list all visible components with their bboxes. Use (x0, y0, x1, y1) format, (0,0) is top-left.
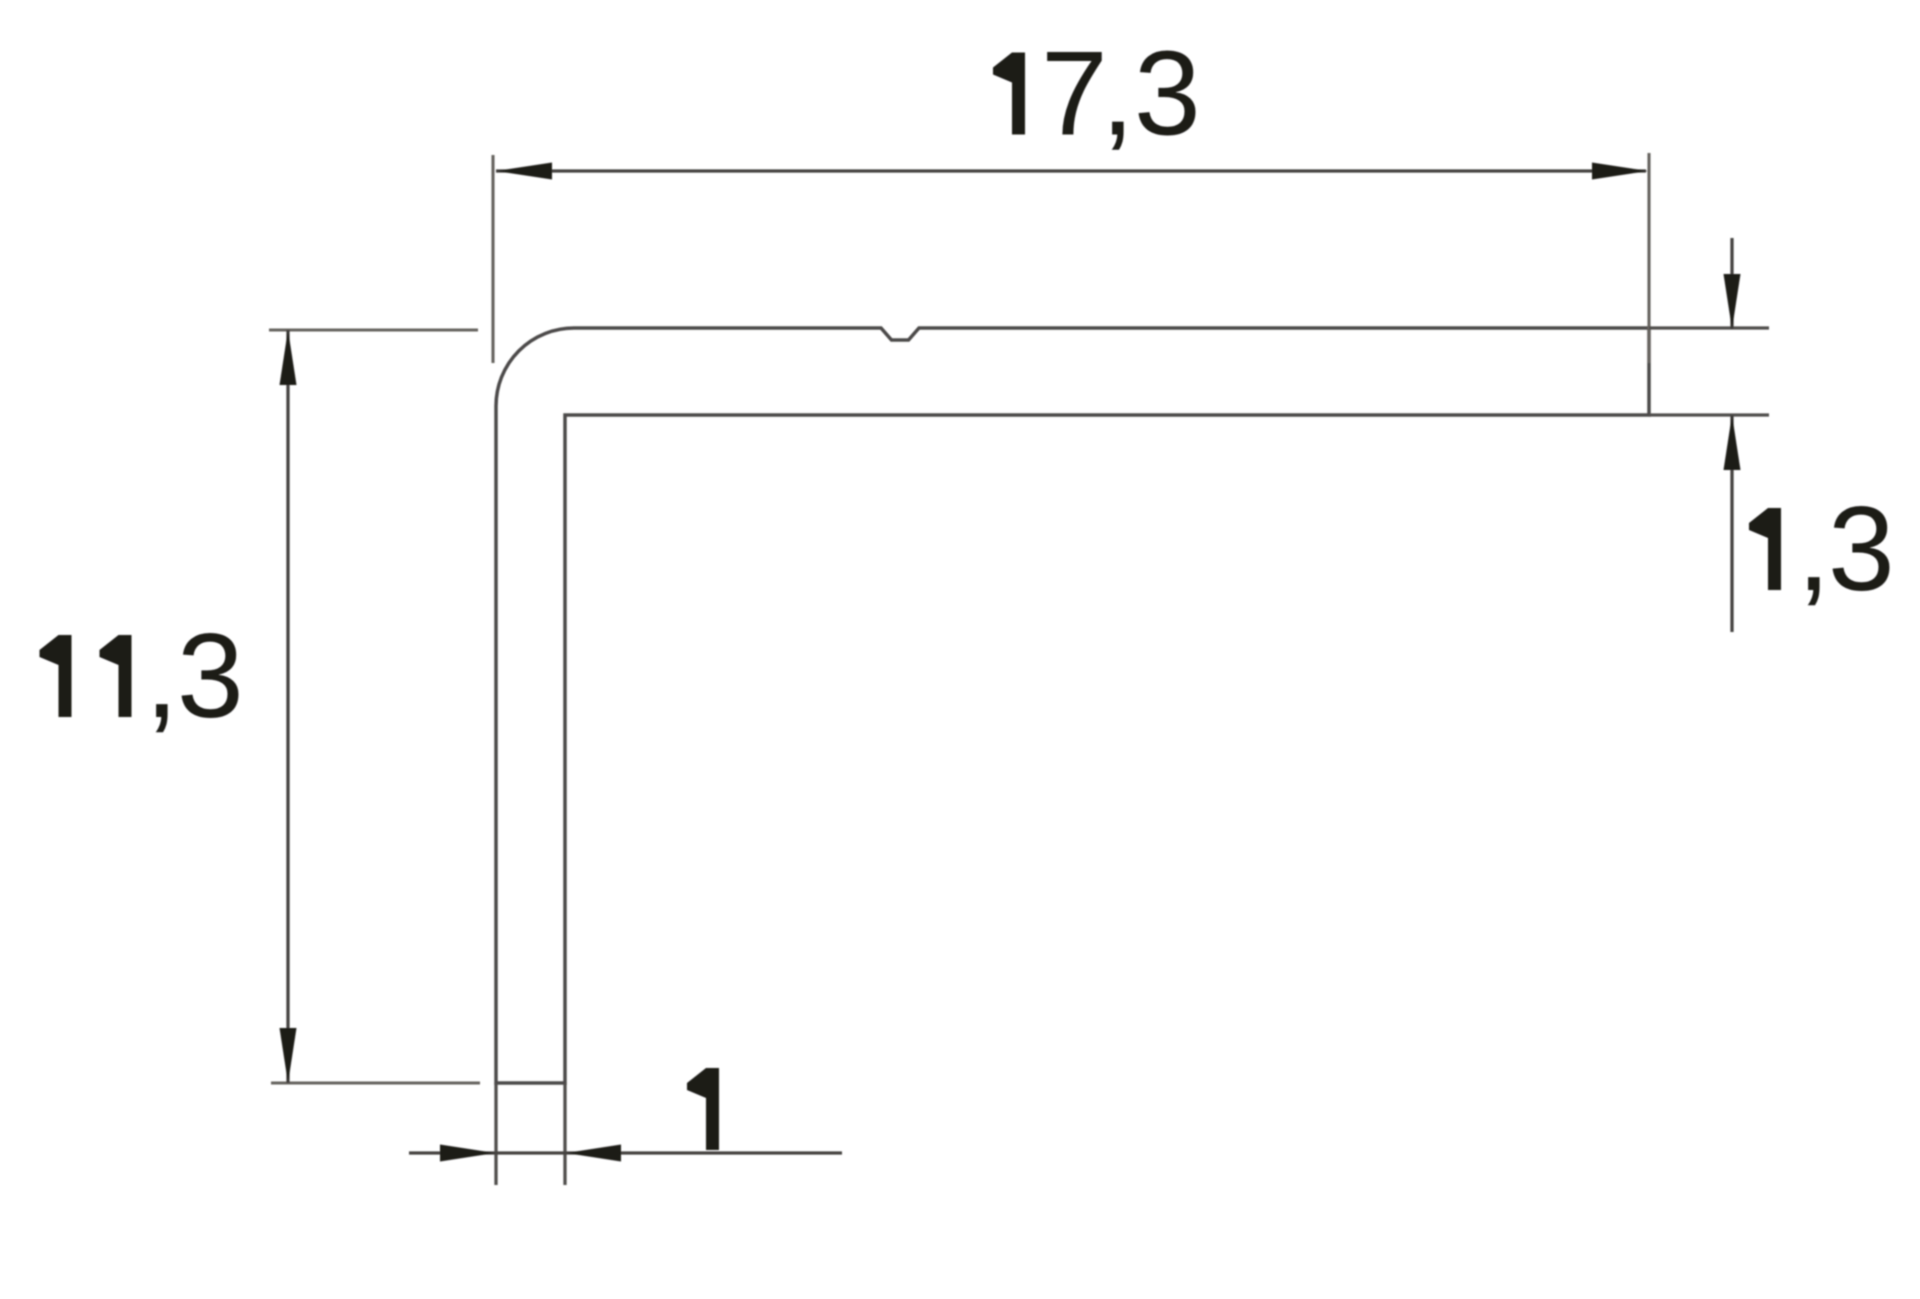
svg-text:3: 3 (1134, 27, 1201, 161)
svg-text:,: , (145, 609, 178, 743)
svg-text:,: , (1101, 27, 1134, 161)
svg-text:,: , (1797, 482, 1830, 616)
svg-text:3: 3 (177, 609, 244, 743)
svg-text:7: 7 (1041, 27, 1108, 161)
svg-text:3: 3 (1828, 482, 1895, 616)
